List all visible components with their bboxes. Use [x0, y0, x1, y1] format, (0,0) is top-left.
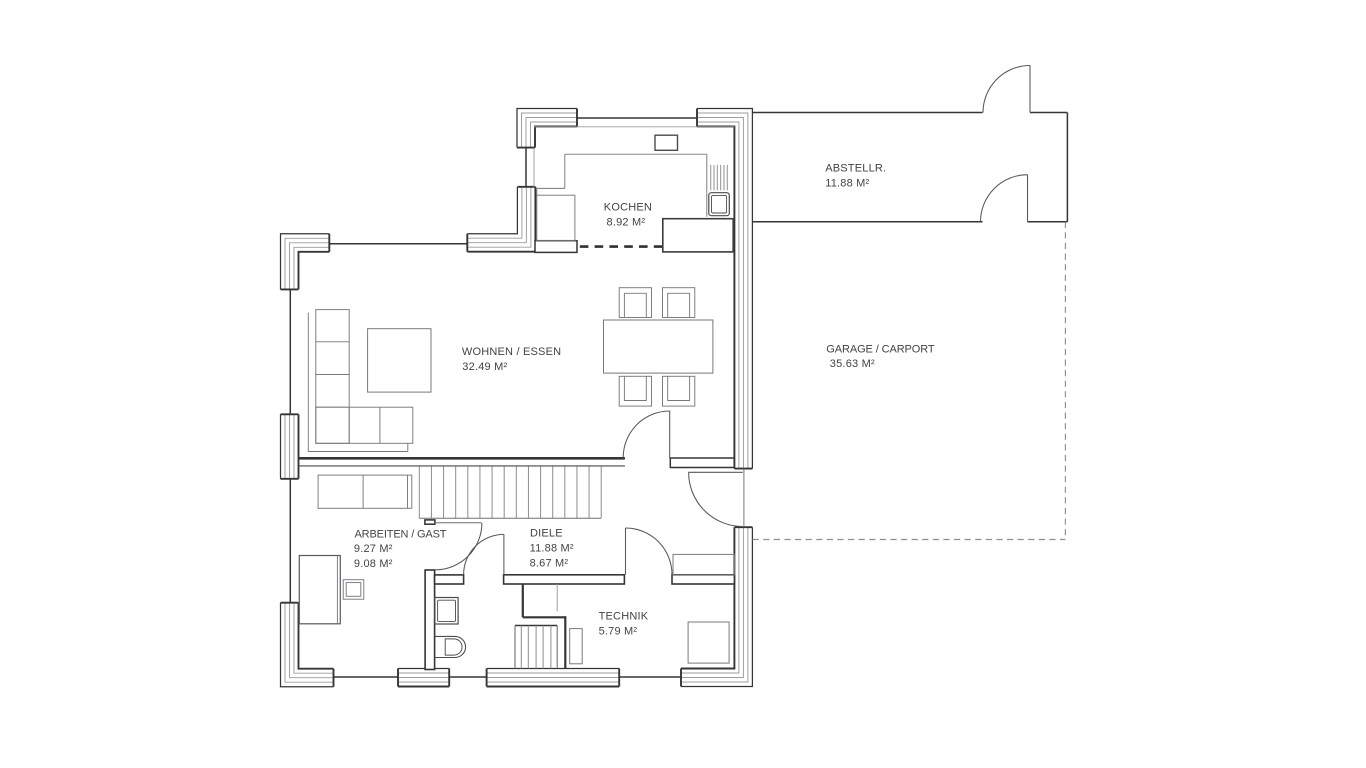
- svg-text:5.79 M²: 5.79 M²: [599, 625, 638, 637]
- svg-text:GARAGE / CARPORT: GARAGE / CARPORT: [826, 343, 935, 355]
- svg-text:WOHNEN / ESSEN: WOHNEN / ESSEN: [462, 346, 561, 358]
- svg-text:8.92 M²: 8.92 M²: [607, 216, 646, 228]
- svg-text:ABSTELLR.: ABSTELLR.: [825, 163, 886, 175]
- svg-text:11.88 M²: 11.88 M²: [825, 178, 869, 190]
- svg-text:TECHNIK: TECHNIK: [599, 611, 649, 623]
- svg-text:9.27 M²: 9.27 M²: [354, 543, 393, 555]
- svg-text:DIELE: DIELE: [530, 528, 563, 540]
- svg-text:ARBEITEN / GAST: ARBEITEN / GAST: [355, 528, 447, 540]
- svg-text:11.88 M²: 11.88 M²: [530, 543, 574, 555]
- svg-text:32.49 M²: 32.49 M²: [462, 361, 507, 373]
- svg-text:9.08 M²: 9.08 M²: [354, 558, 393, 570]
- svg-text:KOCHEN: KOCHEN: [604, 202, 652, 214]
- svg-text:8.67 M²: 8.67 M²: [530, 557, 569, 569]
- svg-text:35.63 M²: 35.63 M²: [830, 358, 875, 370]
